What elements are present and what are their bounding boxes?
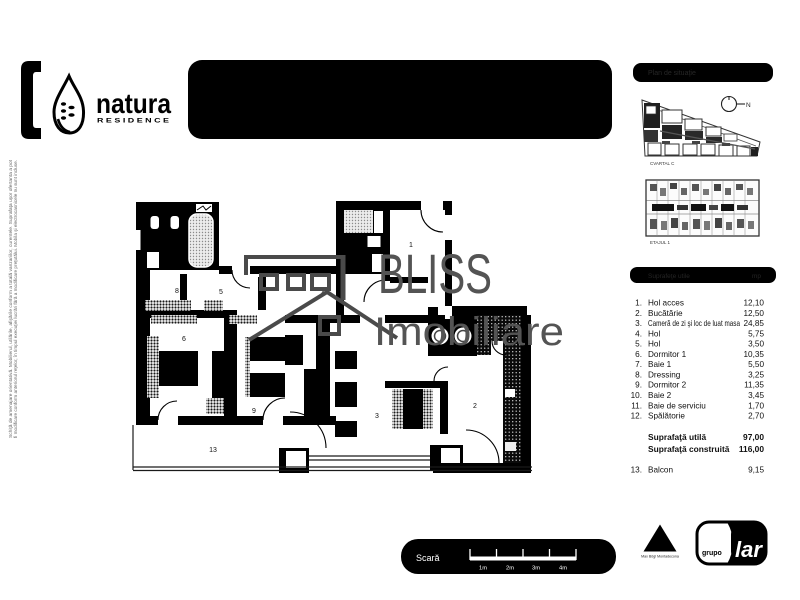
- svg-text:Balcon: Balcon: [648, 466, 673, 475]
- svg-text:5,50: 5,50: [748, 360, 764, 369]
- svg-text:Hol: Hol: [648, 340, 660, 349]
- svg-text:10.: 10.: [631, 391, 642, 400]
- svg-text:Suprafaţă construită: Suprafaţă construită: [648, 444, 730, 454]
- svg-text:Dormitor 2: Dormitor 2: [648, 381, 687, 390]
- svg-text:Cameră de zi şi loc de luat ma: Cameră de zi şi loc de luat masa: [648, 319, 740, 328]
- svg-text:4.: 4.: [635, 329, 642, 338]
- svg-text:grupo: grupo: [702, 550, 722, 557]
- svg-text:1.: 1.: [635, 299, 642, 308]
- svg-text:116,00: 116,00: [739, 444, 764, 454]
- svg-text:6: 6: [182, 336, 186, 343]
- svg-text:2m: 2m: [506, 566, 514, 572]
- svg-text:Plan de situaţie: Plan de situaţie: [648, 70, 696, 77]
- svg-text:97,00: 97,00: [743, 432, 764, 442]
- svg-text:13.: 13.: [631, 466, 642, 475]
- svg-text:12,10: 12,10: [744, 299, 765, 308]
- svg-text:3: 3: [375, 413, 379, 420]
- svg-text:12,50: 12,50: [744, 309, 765, 318]
- svg-text:13: 13: [209, 447, 217, 454]
- svg-text:lar: lar: [735, 537, 763, 562]
- svg-text:2.: 2.: [635, 309, 642, 318]
- svg-text:Suprafeţe utile: Suprafeţe utile: [648, 273, 690, 280]
- svg-text:24,85: 24,85: [744, 319, 765, 328]
- svg-text:Dormitor 1: Dormitor 1: [648, 350, 687, 359]
- svg-text:CVARTAL C: CVARTAL C: [650, 161, 675, 166]
- svg-text:2: 2: [473, 403, 477, 410]
- svg-text:3.: 3.: [635, 319, 642, 328]
- svg-text:Baie de serviciu: Baie de serviciu: [648, 401, 706, 410]
- svg-text:Baie 2: Baie 2: [648, 391, 672, 400]
- svg-text:Dressing: Dressing: [648, 371, 681, 380]
- svg-text:Max Bögl Montadecona: Max Bögl Montadecona: [641, 555, 679, 559]
- svg-text:Hol: Hol: [648, 329, 660, 338]
- svg-text:9: 9: [252, 408, 256, 415]
- svg-text:Scară: Scară: [416, 553, 440, 563]
- svg-text:5: 5: [219, 289, 223, 296]
- svg-text:Bucătărie: Bucătărie: [648, 309, 683, 318]
- svg-text:6.: 6.: [635, 350, 642, 359]
- svg-text:3,25: 3,25: [748, 371, 764, 380]
- svg-text:2,70: 2,70: [748, 412, 764, 421]
- svg-text:8.: 8.: [635, 371, 642, 380]
- svg-text:Hol acces: Hol acces: [648, 299, 684, 308]
- svg-text:1m: 1m: [479, 566, 487, 572]
- svg-text:8: 8: [175, 288, 179, 295]
- svg-text:3,50: 3,50: [748, 340, 764, 349]
- svg-text:Baie 1: Baie 1: [648, 360, 672, 369]
- svg-text:11.: 11.: [631, 401, 642, 410]
- svg-text:10,35: 10,35: [744, 350, 765, 359]
- svg-text:3,45: 3,45: [748, 391, 764, 400]
- svg-text:5,75: 5,75: [748, 329, 764, 338]
- svg-text:BLISS: BLISS: [378, 242, 492, 305]
- svg-text:fi modificare conform anterior: fi modificare conform anteriorul reţelor…: [13, 160, 18, 438]
- svg-text:9.: 9.: [635, 381, 642, 390]
- svg-text:Imobiliare: Imobiliare: [374, 310, 564, 354]
- svg-text:natura: natura: [96, 88, 171, 119]
- svg-text:3m: 3m: [532, 566, 540, 572]
- svg-text:12.: 12.: [631, 412, 642, 421]
- svg-text:Suprafaţă utilă: Suprafaţă utilă: [648, 432, 707, 442]
- svg-text:7.: 7.: [635, 360, 642, 369]
- svg-text:ETAJUL 1: ETAJUL 1: [650, 240, 671, 245]
- svg-text:Spălătorie: Spălătorie: [648, 412, 685, 421]
- svg-text:5.: 5.: [635, 340, 642, 349]
- svg-text:N: N: [746, 102, 751, 109]
- svg-text:11,35: 11,35: [744, 381, 764, 390]
- svg-text:4m: 4m: [559, 566, 567, 572]
- svg-text:1,70: 1,70: [748, 401, 764, 410]
- svg-text:9,15: 9,15: [748, 466, 764, 475]
- svg-text:mp: mp: [752, 273, 761, 280]
- svg-text:R E S I D E N C E: R E S I D E N C E: [97, 118, 170, 125]
